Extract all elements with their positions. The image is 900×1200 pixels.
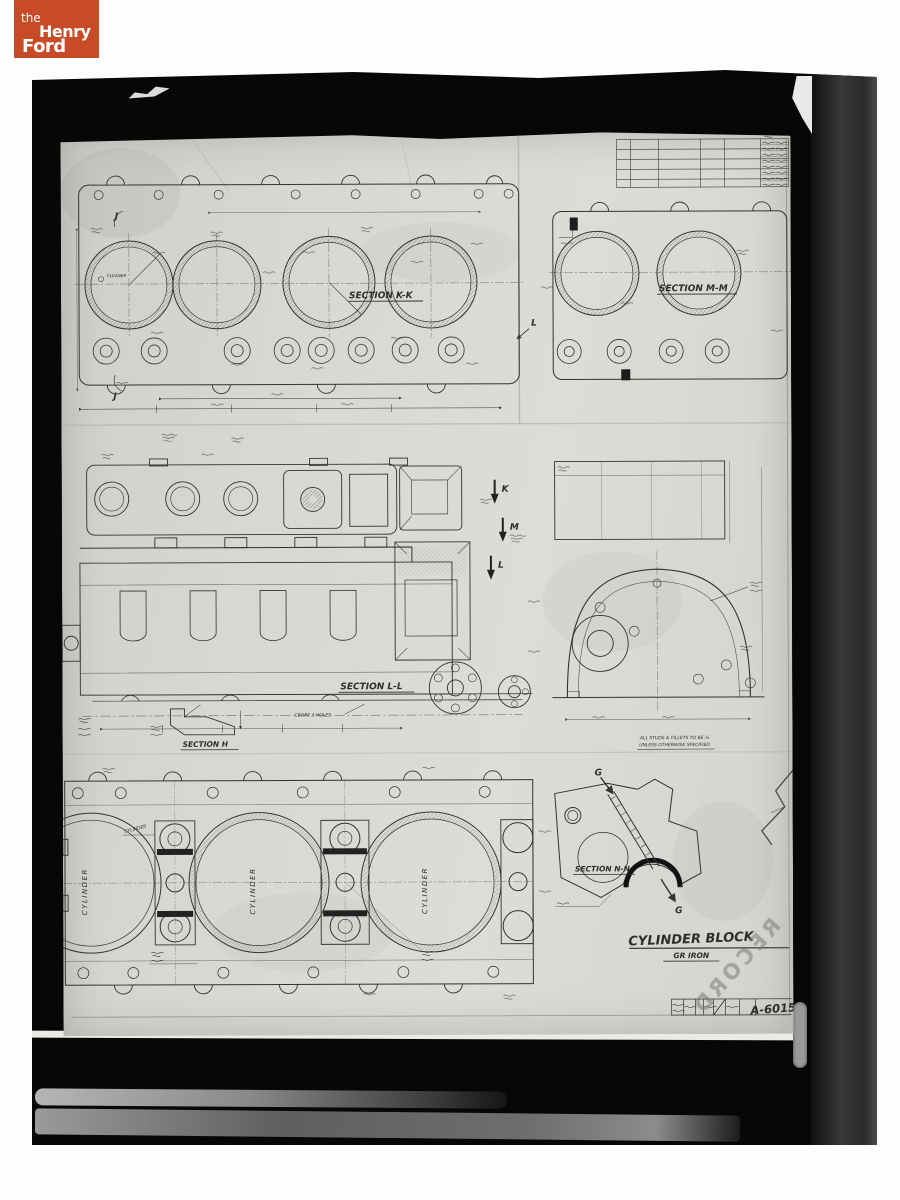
- cylinder-bore-label: CYLINDER: [249, 868, 257, 915]
- middle-section-views: [62, 458, 534, 912]
- scratch-mark: [127, 82, 170, 104]
- scanned-blueprint-page: the Henry Ford: [0, 0, 900, 1200]
- cutting-plane-arrows: K M L: [487, 480, 519, 580]
- sprocket-slot: [793, 1002, 807, 1068]
- logo-word-ford: Ford: [22, 36, 66, 57]
- revision-handwriting: [760, 133, 788, 185]
- drawing-svg: CLEANER SECTION K-K J J L: [60, 131, 793, 1037]
- studs-note-line2: UNLESS OTHERWISE SPECIFIED: [639, 742, 710, 748]
- section-kk-label: SECTION K-K: [349, 291, 414, 301]
- cylinder-callout: CYLINDER: [124, 824, 147, 835]
- film-streak: [35, 1088, 507, 1108]
- cylinder-bore-label: CYLINDER: [421, 867, 429, 914]
- logo-word-the: the: [21, 11, 41, 25]
- blueprint-sheet: CLEANER SECTION K-K J J L: [60, 131, 793, 1037]
- section-nn-label: SECTION N-N: [575, 864, 631, 873]
- section-ll-label: SECTION L-L: [340, 682, 403, 692]
- studs-note-line1: ALL STUDS & FILLETS TO BE ¼: [639, 735, 710, 741]
- section-h-detail: [78, 705, 240, 736]
- svg-text:M: M: [510, 523, 519, 533]
- cbore-note: CBORE 3 HOLES: [294, 712, 331, 718]
- cbore-leader: [344, 704, 364, 714]
- henry-ford-logo: the Henry Ford: [14, 0, 99, 58]
- section-h-label: SECTION H: [183, 740, 229, 749]
- cylinder-bore-label: CYLINDER: [81, 868, 89, 915]
- material-text: GR IRON: [673, 951, 710, 960]
- cleaner-label: CLEANER: [107, 273, 127, 278]
- passage-letter-g-bottom: G: [675, 906, 682, 916]
- section-mm-label: SECTION M-M: [659, 284, 728, 294]
- part-name-text: CYLINDER BLOCK: [628, 930, 755, 950]
- revision-table: [616, 133, 788, 187]
- cutting-letter-l-right: L: [531, 319, 537, 329]
- film-streak: [35, 1108, 740, 1141]
- passage-letter-g-top: G: [595, 768, 602, 778]
- j-leaders: [114, 211, 124, 391]
- svg-text:L: L: [498, 561, 504, 571]
- film-edge-band: [811, 70, 877, 1145]
- svg-text:K: K: [502, 485, 510, 495]
- tear-mark: [790, 76, 812, 134]
